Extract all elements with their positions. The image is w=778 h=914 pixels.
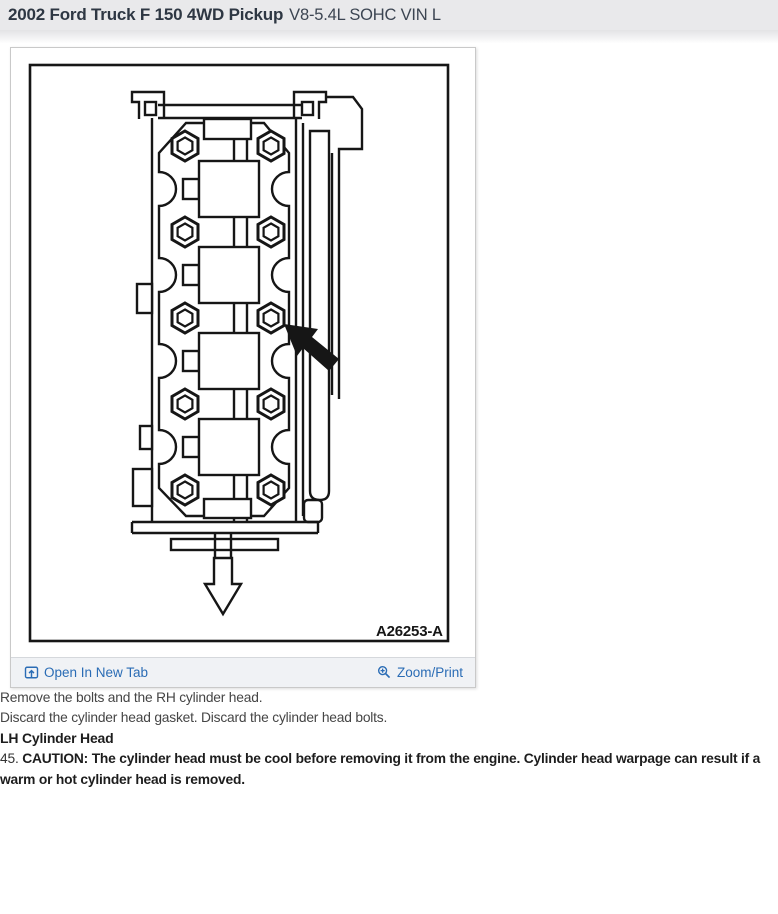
figure-card: A26253-A Open In New Tab Zoom/Print — [10, 47, 476, 688]
step-caution: 45. CAUTION: The cylinder head must be c… — [0, 748, 778, 790]
vehicle-title: 2002 Ford Truck F 150 4WD Pickup — [8, 5, 283, 25]
section-heading: LH Cylinder Head — [0, 728, 778, 748]
open-in-new-tab-icon — [24, 665, 39, 680]
figure-toolbar: Open In New Tab Zoom/Print — [11, 657, 475, 687]
caution-text: CAUTION: The cylinder head must be cool … — [0, 751, 760, 787]
step-remove-text: Remove the bolts and the RH cylinder hea… — [0, 688, 778, 708]
cylinder-head-diagram: A26253-A — [26, 61, 452, 645]
figure-image-area: A26253-A — [11, 48, 475, 657]
vehicle-header-bar: 2002 Ford Truck F 150 4WD Pickup V8-5.4L… — [0, 0, 778, 30]
open-in-new-tab-link[interactable]: Open In New Tab — [24, 665, 148, 680]
procedure-text: Remove the bolts and the RH cylinder hea… — [0, 688, 778, 790]
zoom-print-icon — [377, 665, 392, 680]
step-discard-text: Discard the cylinder head gasket. Discar… — [0, 708, 778, 728]
engine-subtitle: V8-5.4L SOHC VIN L — [289, 6, 441, 25]
figure-code: A26253-A — [376, 623, 443, 640]
header-shadow — [0, 30, 778, 46]
zoom-print-link[interactable]: Zoom/Print — [377, 665, 463, 680]
step-number: 45. — [0, 751, 19, 766]
zoom-print-label: Zoom/Print — [397, 665, 463, 680]
open-in-new-tab-label: Open In New Tab — [44, 665, 148, 680]
